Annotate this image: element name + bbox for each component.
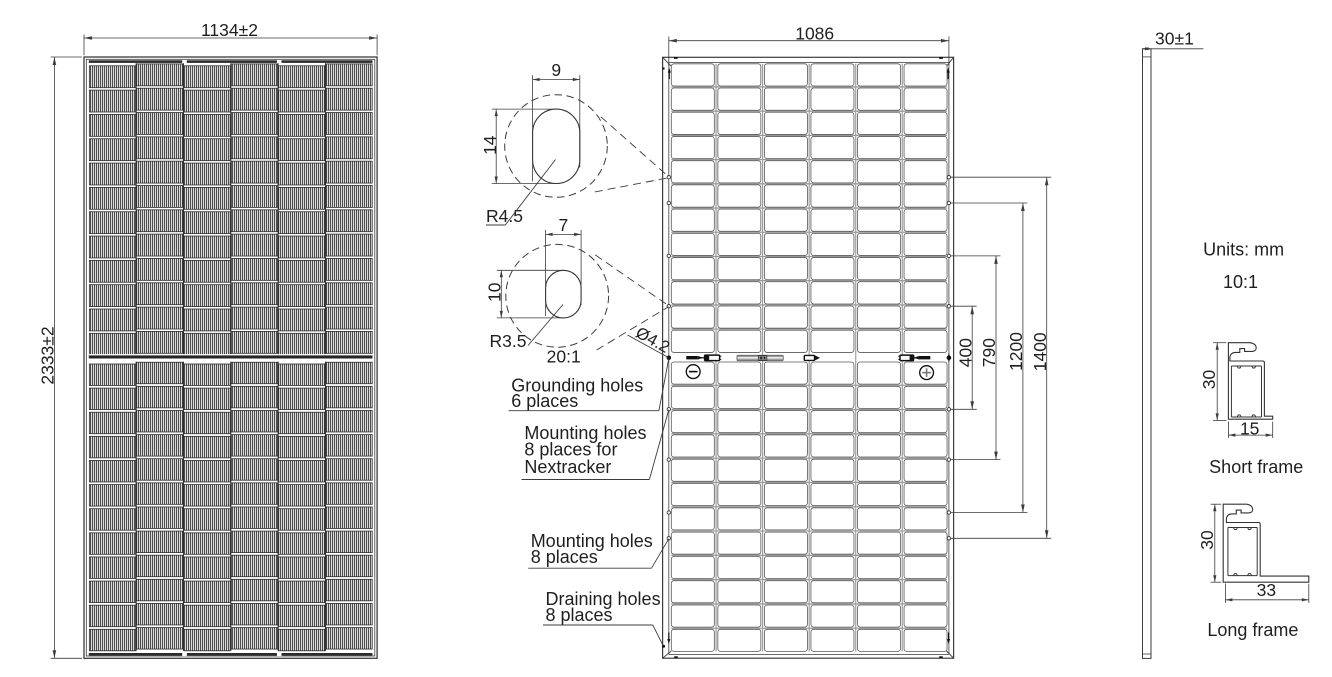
svg-text:1400: 1400 — [1030, 332, 1050, 371]
svg-text:Short frame: Short frame — [1209, 457, 1303, 477]
svg-text:8 places: 8 places — [531, 547, 598, 567]
svg-text:1200: 1200 — [1006, 332, 1026, 371]
svg-text:15: 15 — [1240, 418, 1259, 438]
svg-text:9: 9 — [551, 60, 561, 80]
svg-text:Long frame: Long frame — [1207, 620, 1298, 640]
svg-text:R3.5: R3.5 — [490, 331, 527, 351]
svg-text:20:1: 20:1 — [547, 347, 581, 367]
svg-text:10:1: 10:1 — [1223, 272, 1258, 292]
svg-text:1086: 1086 — [795, 24, 834, 44]
svg-text:30: 30 — [1197, 530, 1217, 550]
svg-text:30±1: 30±1 — [1155, 28, 1194, 48]
svg-text:33: 33 — [1257, 580, 1276, 600]
svg-text:10: 10 — [484, 282, 504, 302]
svg-text:Units: mm: Units: mm — [1203, 240, 1284, 260]
svg-text:790: 790 — [979, 338, 999, 367]
svg-text:30: 30 — [1199, 370, 1219, 390]
svg-text:Nextracker: Nextracker — [524, 457, 611, 477]
svg-text:1134±2: 1134±2 — [201, 20, 258, 40]
svg-text:400: 400 — [955, 338, 975, 367]
svg-text:7: 7 — [559, 215, 569, 235]
svg-text:14: 14 — [480, 135, 500, 155]
svg-text:6 places: 6 places — [511, 391, 578, 411]
svg-text:2333±2: 2333±2 — [37, 326, 57, 384]
svg-text:8 places: 8 places — [546, 605, 613, 625]
